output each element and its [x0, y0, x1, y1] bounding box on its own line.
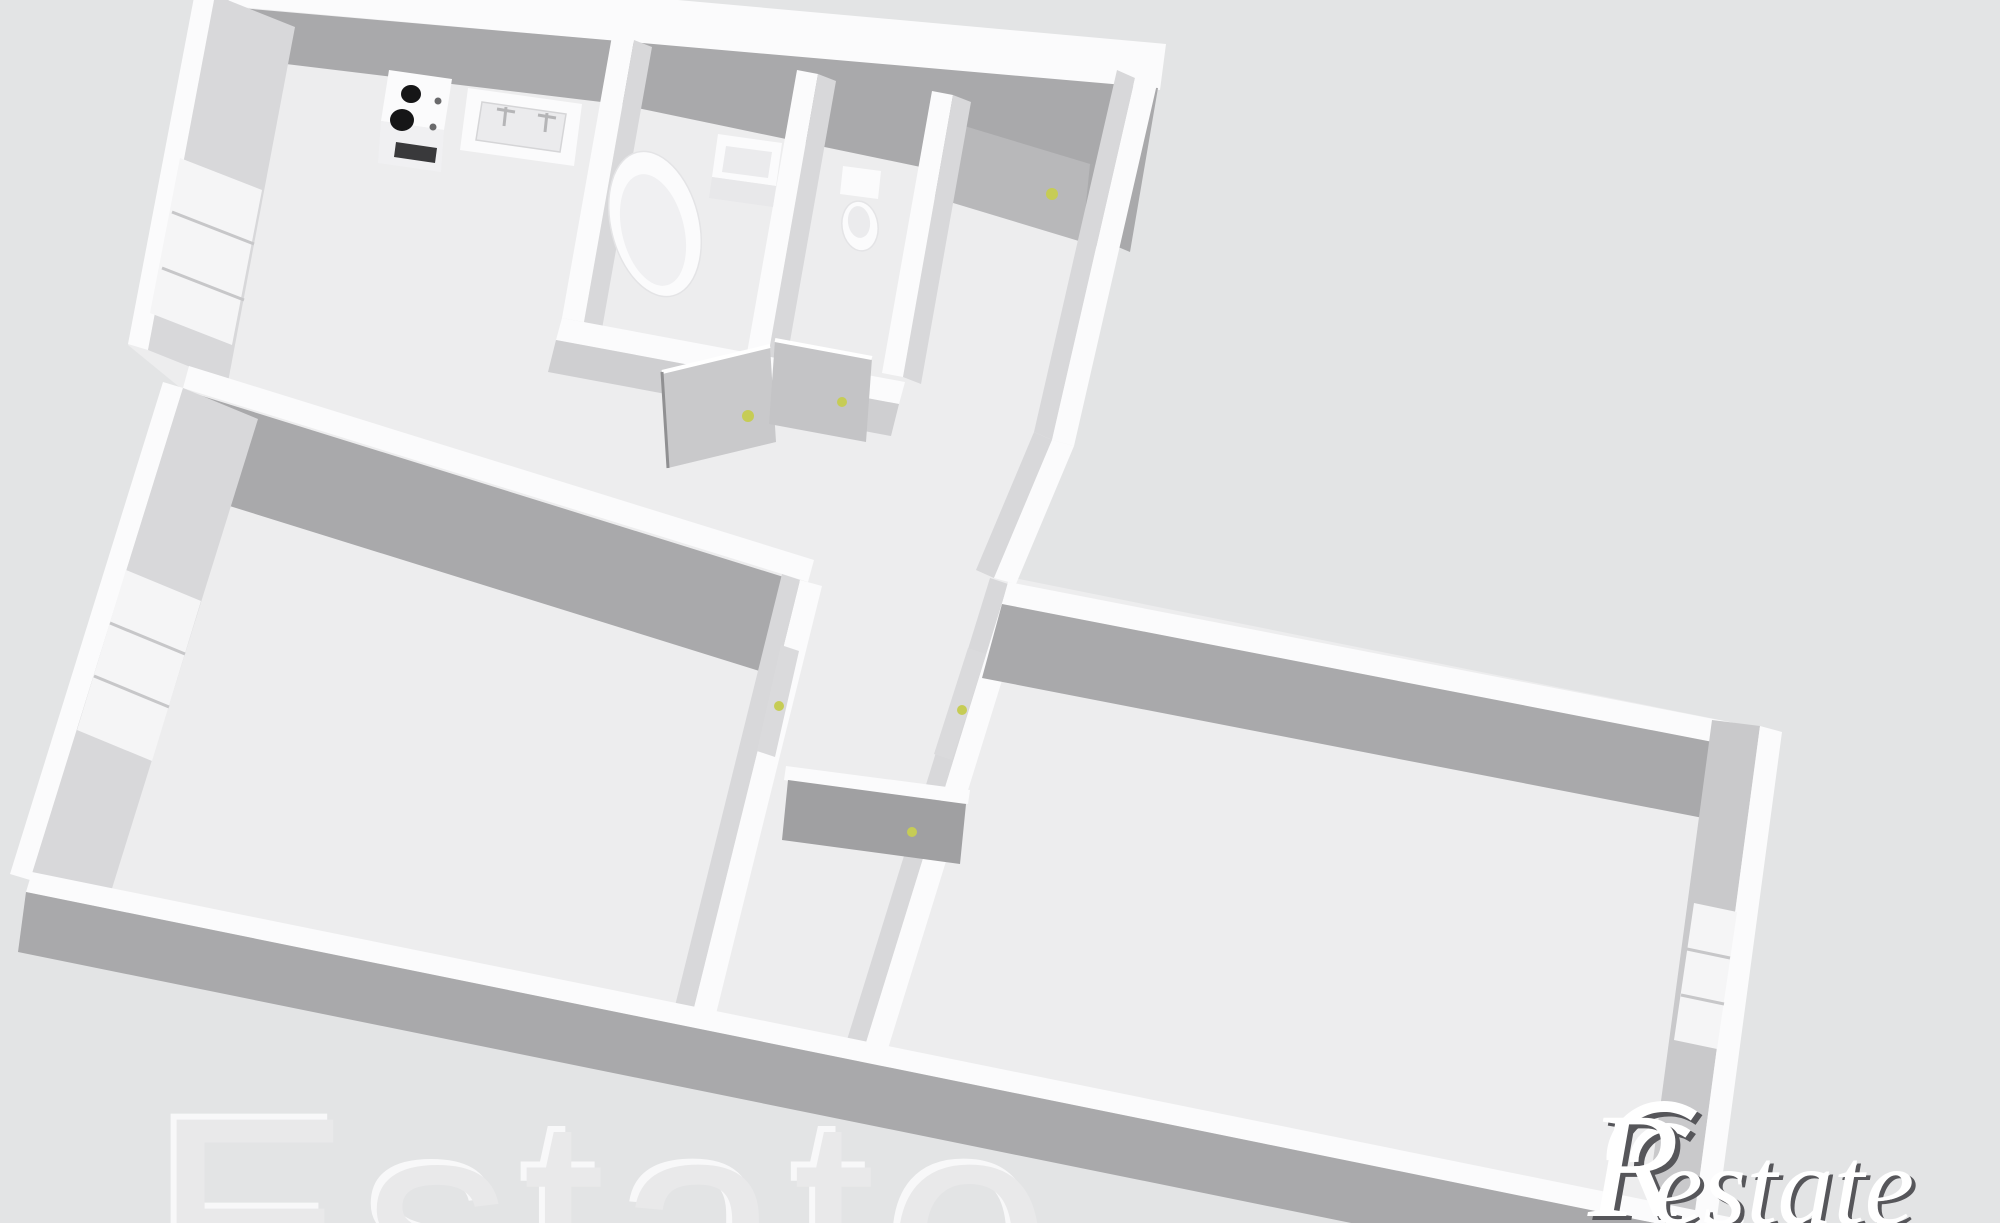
storage-room-door-handle — [1046, 188, 1058, 200]
stove-knob — [435, 98, 442, 105]
hallway-leaning-door-right — [769, 340, 872, 442]
stove-burner — [401, 85, 421, 103]
living-room-door-handle — [957, 705, 967, 715]
hallway-leaning-door-right-handle — [837, 397, 847, 407]
hallway-leaning-door-left-handle — [742, 410, 754, 422]
logo-text: estate — [1653, 1125, 1914, 1223]
corridor-entrance-door-handle — [907, 827, 917, 837]
stove — [378, 70, 452, 172]
toilet-tank — [840, 166, 881, 199]
bedroom-door-handle — [774, 701, 784, 711]
washbasin — [709, 134, 782, 207]
floor-plan-render: Estate Estate — [0, 0, 2000, 1223]
stove-burner — [390, 109, 414, 131]
stove-knob — [430, 124, 437, 131]
